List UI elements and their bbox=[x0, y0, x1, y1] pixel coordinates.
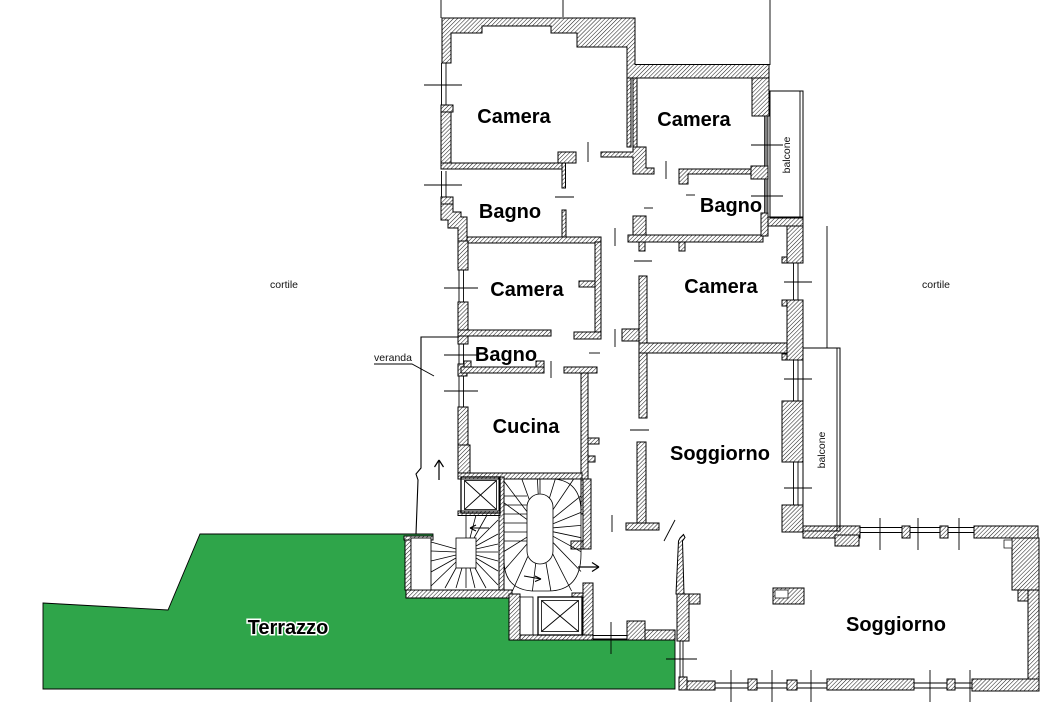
svg-text:veranda: veranda bbox=[374, 352, 412, 364]
svg-text:Camera: Camera bbox=[657, 109, 731, 131]
svg-text:Soggiorno: Soggiorno bbox=[846, 614, 946, 636]
svg-text:cortile: cortile bbox=[270, 279, 298, 291]
svg-text:Camera: Camera bbox=[490, 279, 564, 301]
svg-text:Cucina: Cucina bbox=[493, 416, 561, 438]
svg-text:Terrazzo: Terrazzo bbox=[248, 617, 329, 639]
svg-text:Soggiorno: Soggiorno bbox=[670, 443, 770, 465]
svg-text:balcone: balcone bbox=[781, 136, 793, 173]
svg-text:Bagno: Bagno bbox=[475, 344, 537, 366]
svg-text:cortile: cortile bbox=[922, 279, 950, 291]
svg-text:Camera: Camera bbox=[684, 276, 758, 298]
svg-text:balcone: balcone bbox=[816, 431, 828, 468]
svg-text:Camera: Camera bbox=[477, 106, 551, 128]
svg-text:Bagno: Bagno bbox=[700, 195, 762, 217]
svg-text:Bagno: Bagno bbox=[479, 201, 541, 223]
